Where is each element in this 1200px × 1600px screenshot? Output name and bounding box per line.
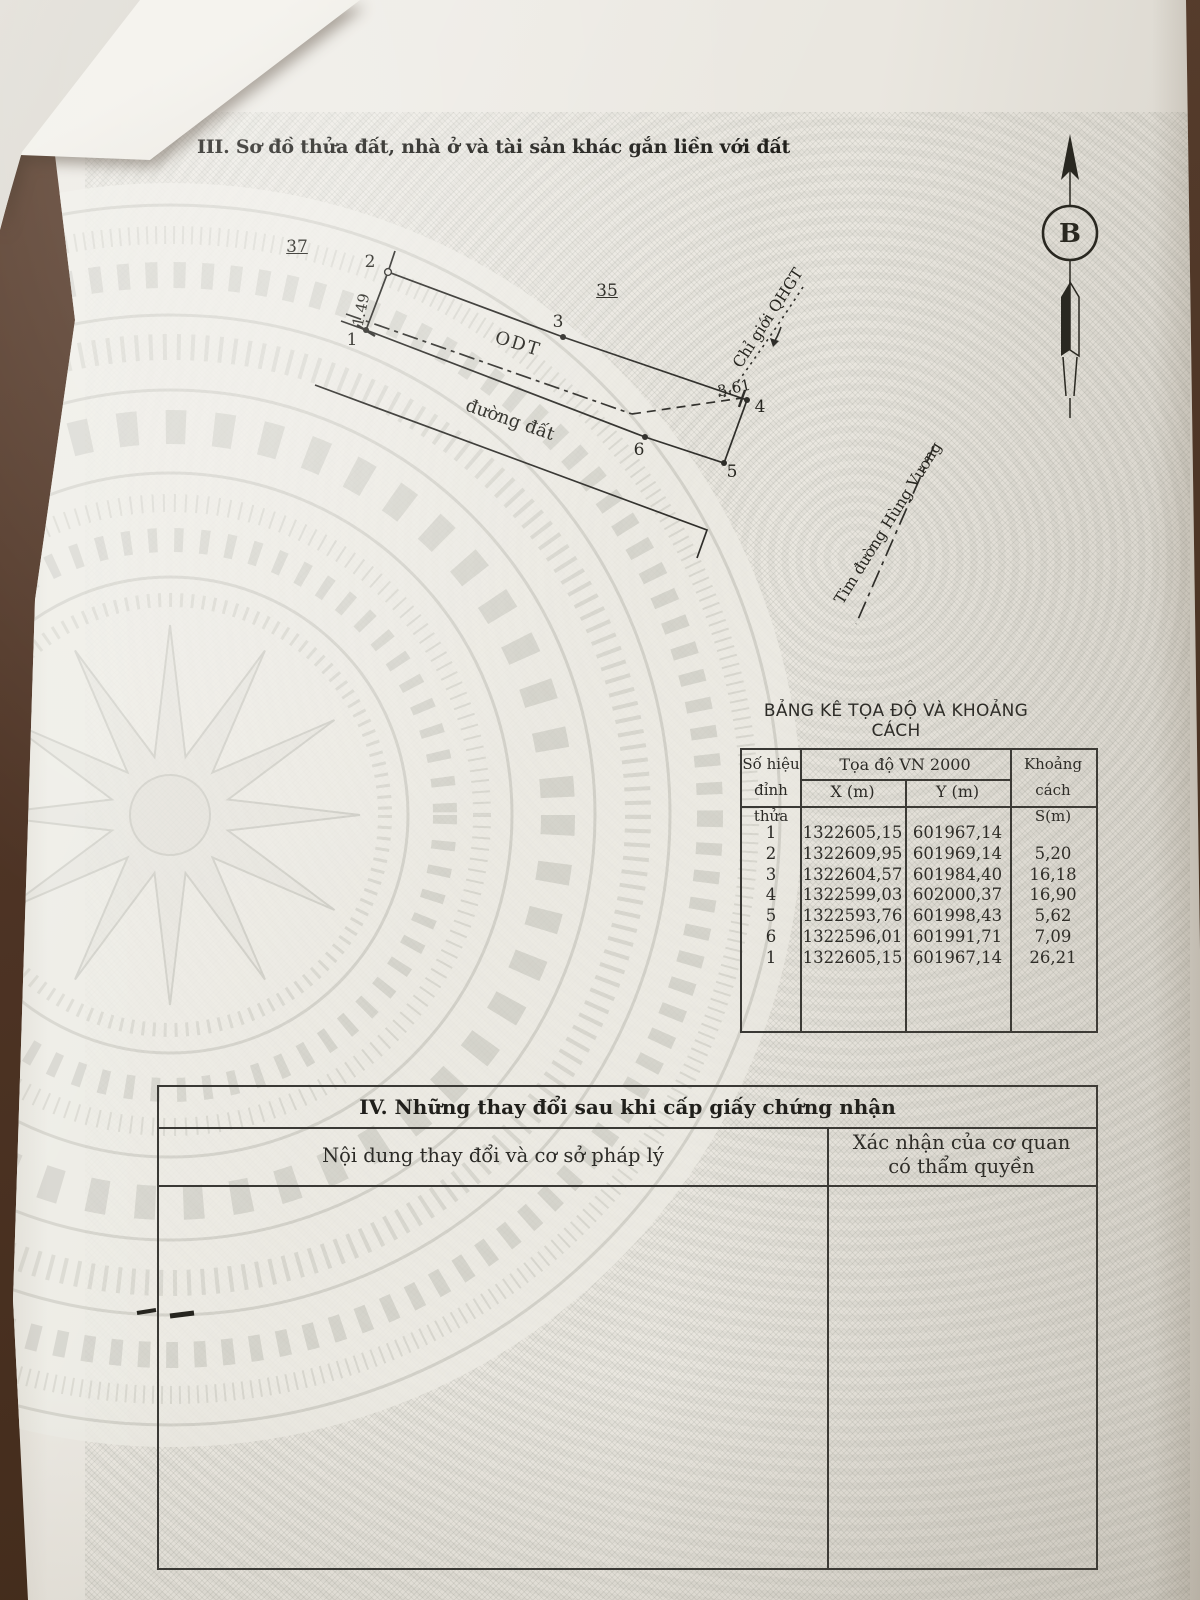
table-row: 21322609,95601969,145,20 [742, 844, 1096, 865]
header-x: X (m) [800, 779, 905, 806]
vertex-4-label: 4 [755, 397, 766, 417]
photographed-land-certificate: III. Sơ đồ thửa đất, nhà ở và tài sản kh… [0, 0, 1200, 1600]
coordinate-table: Số hiệu đỉnh thửa Tọa độ VN 2000 X (m) Y… [740, 748, 1098, 1033]
north-arrow-icon [1043, 134, 1097, 418]
table-row: 61322596,01601991,717,09 [742, 927, 1096, 948]
table-row: 51322593,76601998,435,62 [742, 906, 1096, 927]
header-coords-vn2000: Tọa độ VN 2000 [800, 750, 1010, 779]
folded-page-corner [0, 0, 430, 310]
section-iv-title: IV. Những thay đổi sau khi cấp giấy chứn… [159, 1087, 1096, 1127]
table-row: 31322604,57601984,4016,18 [742, 865, 1096, 886]
coord-table-title: BẢNG KÊ TỌA ĐỘ VÀ KHOẢNG CÁCH [740, 701, 1052, 741]
vertex-3-label: 3 [553, 312, 564, 332]
vertex-6-label: 6 [634, 440, 645, 460]
table-row: 41322599,03602000,3716,90 [742, 885, 1096, 906]
table-row: 11322605,15601967,14 [742, 823, 1096, 844]
adjacent-parcel-35-label: 35 [596, 281, 618, 301]
header-y: Y (m) [905, 779, 1010, 806]
vertex-5-label: 5 [727, 462, 738, 482]
section-iv-table: IV. Những thay đổi sau khi cấp giấy chứn… [157, 1085, 1098, 1570]
vertex-1-label: 1 [347, 330, 358, 350]
coord-table-body: 11322605,15601967,14 21322609,95601969,1… [742, 806, 1096, 1031]
section-iv-col2-header: Xác nhận của cơ quan có thẩm quyền [827, 1127, 1096, 1185]
north-label: B [1059, 219, 1081, 249]
table-row: 11322605,15601967,1426,21 [742, 948, 1096, 969]
section-iv-col1-header: Nội dung thay đổi và cơ sở pháp lý [159, 1127, 827, 1185]
